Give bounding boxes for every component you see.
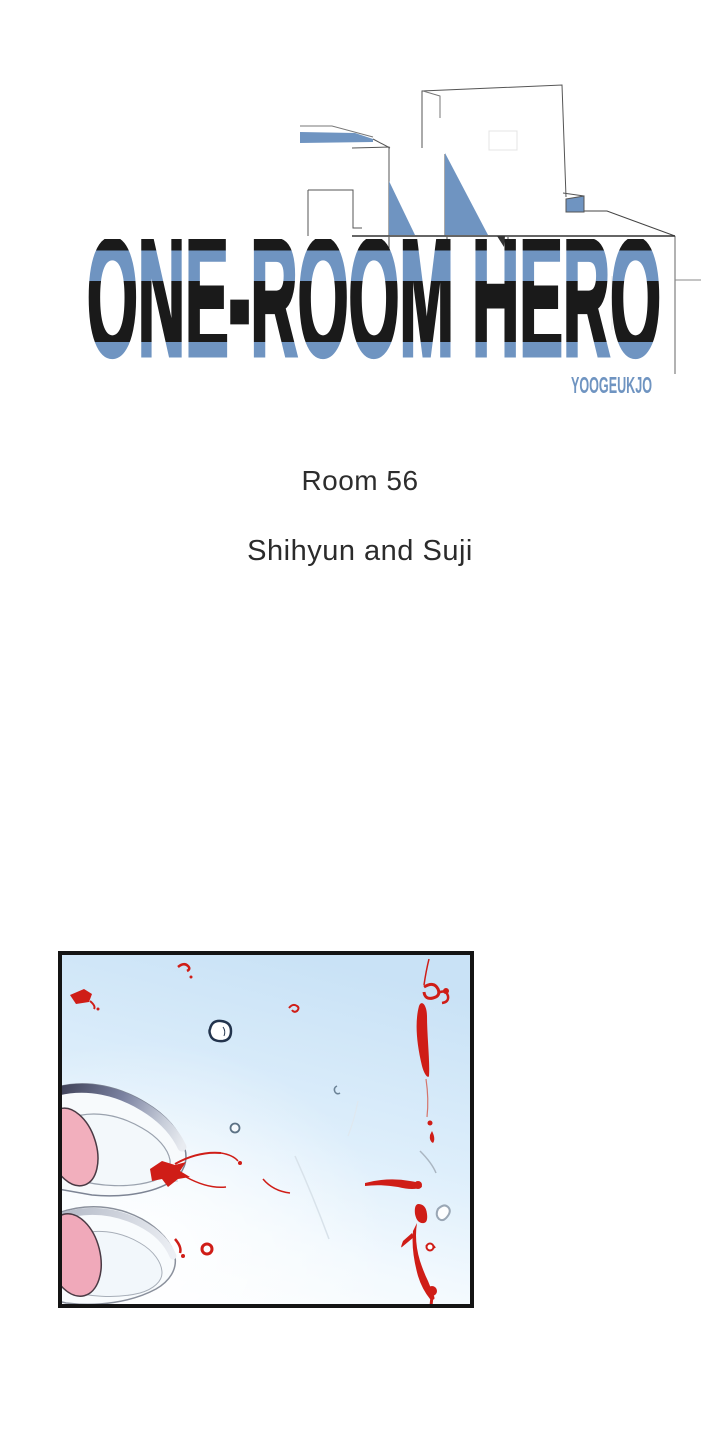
comic-panel xyxy=(58,951,474,1308)
droplet-large xyxy=(210,1021,232,1041)
episode-number: Room 56 xyxy=(0,466,720,497)
shadow-triangle-large xyxy=(445,153,488,235)
shadow-triangle-small xyxy=(389,181,415,235)
series-title: ONE-ROOM HERO xyxy=(86,239,664,361)
author-name-text: YOOGEUKJO xyxy=(571,373,652,398)
building-window xyxy=(489,131,517,150)
episode-subtitle: Shihyun and Suji xyxy=(0,536,720,568)
author-name: YOOGEUKJO xyxy=(570,373,654,399)
series-title-text: ONE-ROOM HERO xyxy=(87,239,661,361)
droplet-small xyxy=(231,1124,240,1133)
blue-box xyxy=(566,196,584,212)
